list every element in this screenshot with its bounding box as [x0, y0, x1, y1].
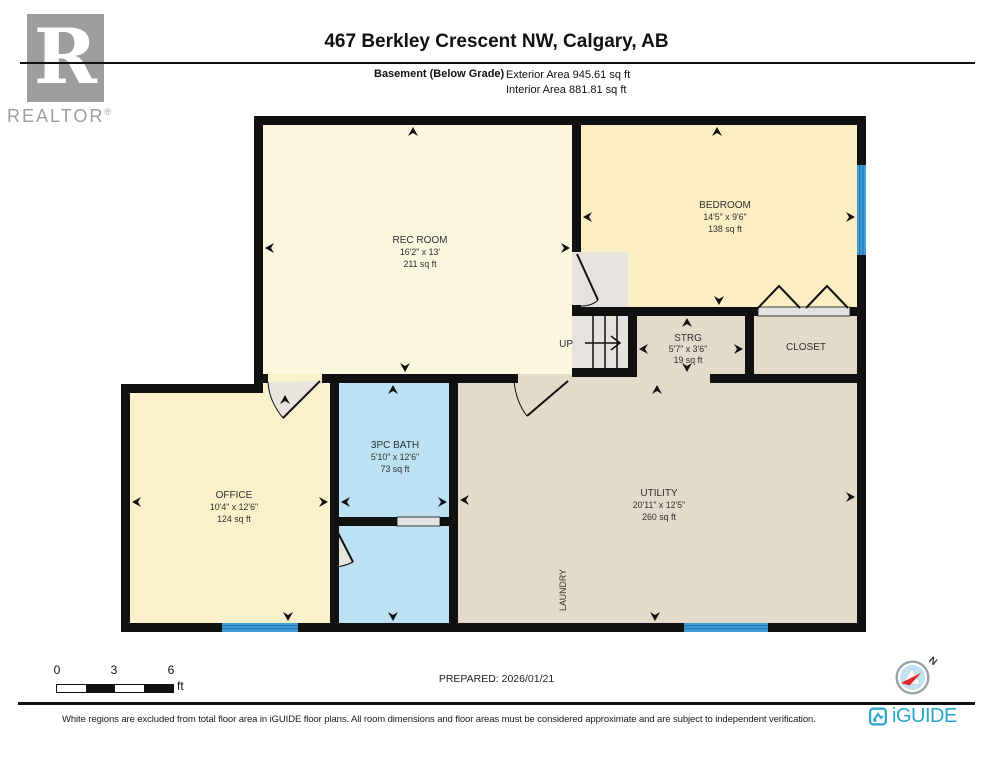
bath-area: 73 sq ft	[381, 464, 410, 474]
bedroom-area: 138 sq ft	[708, 224, 742, 234]
office-name: OFFICE	[216, 490, 253, 501]
header-divider	[20, 62, 975, 64]
closet-opening-sill	[758, 307, 850, 316]
disclaimer-text: White regions are excluded from total fl…	[62, 714, 816, 725]
floor-plan: REC ROOM 16'2" x 13' 211 sq ft BEDROOM 1…	[0, 0, 993, 768]
utility-name: UTILITY	[640, 488, 678, 499]
window-bedroom	[857, 165, 866, 255]
scale-bar	[56, 684, 174, 693]
floor-label: Basement (Below Grade)	[374, 68, 504, 80]
rec-room-area: 211 sq ft	[403, 259, 437, 269]
iguide-icon	[868, 706, 889, 727]
window-utility	[684, 623, 768, 632]
laundry-label: LAUNDRY	[558, 569, 568, 611]
scale-segment	[86, 685, 115, 692]
iguide-brand-text: iGUIDE	[892, 705, 957, 728]
prepared-date: PREPARED: 2026/01/21	[0, 673, 993, 685]
interior-area: Interior Area 881.81 sq ft	[506, 83, 630, 98]
utility-area: 260 sq ft	[642, 512, 676, 522]
page-title: 467 Berkley Crescent NW, Calgary, AB	[0, 31, 993, 53]
strg-name: STRG	[674, 333, 702, 344]
stairs	[581, 316, 628, 368]
office-dims: 10'4" x 12'6"	[210, 502, 258, 512]
registered-mark: ®	[104, 107, 113, 117]
rec-room-name: REC ROOM	[393, 235, 448, 246]
rec-room-dims: 16'2" x 13'	[400, 247, 441, 257]
area-summary: Exterior Area 945.61 sq ft Interior Area…	[506, 68, 630, 97]
bath-name: 3PC BATH	[371, 440, 419, 451]
closet-name: CLOSET	[786, 342, 826, 353]
bath-dims: 5'10" x 12'6"	[371, 452, 419, 462]
office-area: 124 sq ft	[217, 514, 251, 524]
scale-segment	[115, 685, 144, 692]
bedroom-name: BEDROOM	[699, 200, 751, 211]
footer-divider	[18, 702, 975, 705]
strg-dims: 5'7" x 3'6"	[669, 344, 707, 354]
window-office	[222, 623, 298, 632]
stairs-up-label: UP	[559, 339, 573, 350]
scale-segment	[57, 685, 86, 692]
utility-dims: 20'11" x 12'5"	[633, 500, 686, 510]
scale-segment	[144, 685, 173, 692]
strg-area: 19 sq ft	[674, 355, 703, 365]
room-bath	[339, 374, 449, 623]
exterior-area: Exterior Area 945.61 sq ft	[506, 68, 630, 83]
realtor-logo: R	[27, 14, 104, 102]
bath-opening-sill	[397, 517, 440, 526]
bedroom-dims: 14'5" x 9'6"	[703, 212, 746, 222]
utility-strip	[572, 377, 637, 384]
realtor-word: REALTOR	[7, 106, 104, 126]
realtor-logo-text: REALTOR®	[7, 106, 113, 127]
iguide-logo: iGUIDE	[868, 705, 957, 728]
